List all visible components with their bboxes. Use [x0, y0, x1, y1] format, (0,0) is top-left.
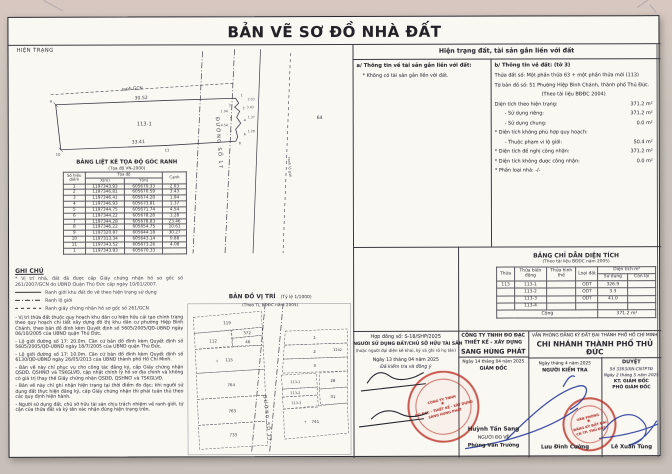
svg-text:372: 372 — [243, 330, 251, 335]
legend-row-setback: Ranh lộ giới — [15, 298, 183, 304]
approval-label: DUYỆT — [601, 359, 661, 365]
land-info-line: Tờ bản đồ số: 51 Phường Hiệp Bình Chánh,… — [495, 82, 655, 89]
company-seal-text: CÔNG TY TNHH — [427, 394, 456, 406]
svg-text:1.37: 1.37 — [248, 115, 255, 119]
checker-date: Ngày tháng 4 năm 2025 — [528, 361, 601, 366]
scan-artifact — [649, 4, 656, 12]
area-total-value: 371.2 m² — [598, 310, 656, 318]
svg-text:2.03: 2.03 — [248, 97, 255, 101]
footer-rule — [353, 330, 661, 332]
approval-date: Ngày 2 tháng 5 năm 2025 — [601, 372, 661, 377]
svg-text:4: 4 — [244, 118, 246, 122]
title-rule — [8, 43, 660, 46]
deputy-role1: KT. GIÁM ĐỐC — [601, 379, 661, 384]
note-paragraph: - Lộ giới đường số 17: 10.0m. Căn cứ bản… — [15, 352, 183, 363]
land-user-role-note: (hoặc người đại diện kê khai, ký và ghi … — [353, 348, 458, 353]
land-info-line: - Thuộc phạm vi lộ giới:50.4 m² — [495, 139, 655, 146]
scan-artifact — [43, 0, 63, 11]
svg-text:1142: 1142 — [333, 348, 342, 352]
svg-text:741: 741 — [311, 419, 319, 424]
col-point: Số hiệu điểm — [63, 172, 85, 184]
svg-text:30.52: 30.52 — [134, 95, 147, 101]
approval-number: Số 3363/XN-CNTPTĐ — [601, 366, 661, 371]
location-map: 119 112 372 46 115 764 763 733 1 2 3 114… — [187, 303, 351, 455]
svg-text:119: 119 — [223, 320, 231, 325]
ab-divider — [491, 59, 492, 247]
svg-text:8: 8 — [239, 141, 241, 145]
dashed-line-swatch — [15, 308, 41, 309]
deputy-name: Lê Xuân Tùng — [602, 444, 662, 450]
land-info-line: - Sử dụng chung:0.0 m² — [495, 120, 655, 127]
table-row: 11197343.93605670.33 — [64, 248, 187, 254]
land-user-checked-note: Đã kiểm tra và đồng ý — [353, 365, 458, 370]
office-seal-text: VĂN PHÒNG — [576, 412, 600, 422]
col-bien-dong: Thửa biến động — [515, 266, 547, 281]
note-paragraph: - Người sử dụng đất, chủ sở hữu tài sản … — [15, 402, 183, 413]
svg-text:46: 46 — [245, 339, 251, 344]
svg-text:4.54: 4.54 — [221, 123, 228, 127]
svg-text:1: 1 — [241, 93, 243, 97]
svg-text:3: 3 — [313, 363, 316, 368]
legend-row-certificate: Ranh giấy chứng nhận hồ sơ gốc số 261/GC… — [15, 307, 183, 313]
land-user-role: NGƯỜI SỬ DỤNG ĐẤT/CHỦ SỞ HỮU TÀI SẢN — [353, 342, 458, 347]
solid-line-swatch — [15, 292, 41, 293]
page-title: BẢN VẼ SƠ ĐỒ NHÀ ĐẤT — [8, 22, 660, 42]
main-divider — [352, 44, 354, 458]
company-header-rule — [458, 356, 528, 357]
svg-text:1: 1 — [313, 335, 316, 340]
note-paragraph: - Bản vẽ này chỉ ghi nhận hiện trạng tại… — [15, 384, 183, 401]
col-hinh-the: Thửa hình thể — [546, 266, 576, 281]
land-status-band: Hiện trạng đất, tài sản gắn liền với đất — [353, 47, 661, 55]
svg-text:28: 28 — [330, 378, 336, 383]
director-role: GIÁM ĐỐC — [458, 366, 528, 371]
surveyor-role: NGƯỜI ĐO VẼ — [459, 435, 529, 440]
dashdot-line-swatch — [15, 300, 41, 301]
land-user-date: Ngày 13 tháng 04 năm 2025 — [353, 358, 458, 363]
company-seal-text: SANG HÙNG PHÁT — [428, 407, 462, 420]
svg-text:763: 763 — [228, 408, 236, 413]
director-name: Huỳnh Tấn Sang — [458, 426, 528, 432]
notes-title: GHI CHÚ — [15, 267, 183, 274]
company-seal-text: ĐO ĐẠC - THIẾT KẾ - XÂY DỰNG — [415, 400, 474, 419]
office-line2: CHI NHÁNH THÀNH PHỐ THỦ ĐỨC — [528, 340, 661, 356]
note-paragraph: - Lộ giới đường số 17: 20.0m. Căn cứ bản… — [15, 339, 183, 350]
svg-text:1.28: 1.28 — [248, 129, 255, 133]
svg-text:112: 112 — [209, 338, 217, 343]
band-rule — [353, 58, 661, 60]
svg-text:113-1: 113-1 — [137, 121, 152, 127]
svg-text:764: 764 — [227, 382, 235, 387]
svg-text:ranh lộ giới: ranh lộ giới — [287, 157, 292, 177]
svg-text:3: 3 — [229, 103, 231, 107]
svg-text:10: 10 — [56, 153, 61, 157]
svg-text:1.94: 1.94 — [221, 109, 228, 113]
company-line2: THIẾT KẾ - XÂY DỰNG — [458, 340, 528, 345]
svg-text:+: + — [303, 419, 306, 424]
land-info-line: Thửa đất số: Một phần thửa 63 + một phần… — [495, 72, 655, 79]
svg-text:31: 31 — [330, 394, 336, 399]
land-info-line: * Diện tích không phù hợp quy hoạch: — [495, 129, 655, 136]
checker-role: NGƯỜI KIỂM TRA — [528, 368, 601, 373]
scan-artifact — [637, 0, 649, 8]
svg-text:5: 5 — [230, 116, 232, 120]
area-table-box: BẢNG CHỈ DẪN DIỆN TÍCH (Theo tài liệu BĐ… — [496, 252, 656, 318]
svg-text:9: 9 — [50, 100, 53, 104]
land-info-line: - Sử dụng riêng:371.2 m² — [495, 110, 655, 117]
notes-paragraphs: - Vị trí thửa đất thuộc quy hoạch khu dâ… — [15, 315, 183, 413]
svg-text:3.43: 3.43 — [247, 105, 254, 109]
star-icon: ★ — [586, 419, 592, 425]
land-info-line: * Phân loại nhà: -/- — [495, 167, 655, 174]
svg-text:113-1: 113-1 — [290, 380, 300, 384]
map-parcel-labels: 119 112 372 46 115 764 763 733 1 2 3 114… — [209, 320, 342, 437]
svg-text:6: 6 — [244, 132, 246, 136]
land-info-line: * Diện tích đề nghị công nhận:371.2 m² — [495, 148, 655, 155]
notes-intro: * Vị trí nhà, đất đã được cấp Giấy chứng… — [15, 276, 183, 287]
col-thua: Thửa — [497, 267, 515, 282]
svg-text:33.41: 33.41 — [132, 139, 145, 145]
svg-text:2: 2 — [313, 349, 316, 354]
checker-name: Lưu Đình Cường — [529, 444, 602, 450]
land-info-title: b/ Thông tin về đất: (tờ 3) — [495, 62, 571, 68]
col-edge: Cạnh — [163, 172, 187, 184]
map-scale: (Tỷ lệ 1/1000) — [281, 295, 312, 300]
office-seal-text: CN TP. THỦ ĐỨC — [576, 425, 607, 437]
document-sheet: BẢN VẼ SƠ ĐỒ NHÀ ĐẤT HIỆN TRẠNG ranh GCN… — [7, 15, 660, 458]
notes-section: GHI CHÚ * Vị trí nhà, đất đã được cấp Gi… — [15, 267, 183, 415]
note-paragraph: - Vị trí thửa đất thuộc quy hoạch khu dâ… — [15, 315, 183, 337]
col-con-lai: Còn lại — [628, 273, 656, 280]
col-loai-dat: Loại đất — [576, 266, 598, 281]
land-info-line: Diện tích theo hiện trạng:371.2 m² — [495, 101, 655, 108]
svg-text:2: 2 — [243, 106, 245, 110]
area-section-divider — [458, 247, 459, 331]
star-icon: ★ — [440, 402, 446, 408]
svg-text:11: 11 — [165, 148, 170, 152]
land-info-lines: Thửa đất số: Một phần thửa 63 + một phần… — [495, 72, 655, 177]
doc-inner-right-border — [656, 43, 658, 457]
svg-text:113-3: 113-3 — [291, 401, 301, 405]
scanned-land-survey-page: { "doc": { "title": "BẢN VẼ SƠ ĐỒ NHÀ ĐẤ… — [0, 0, 672, 474]
map-title: BẢN ĐỒ VỊ TRÍ — [229, 294, 276, 300]
office-line1: VĂN PHÒNG ĐĂNG KÝ ĐẤT ĐAI THÀNH PHỐ HỒ C… — [528, 333, 661, 338]
office-seal-text: ĐĂNG KÝ ĐẤT ĐAI — [573, 420, 607, 433]
svg-text:7: 7 — [230, 130, 232, 134]
asset-info-title: a/ Thông tin về tài sản gắn liền với đất… — [357, 63, 472, 69]
area-section-rule — [353, 246, 661, 248]
company-date: Ngày 14 tháng 04 năm 2025 — [458, 359, 528, 364]
area-table-subtitle: (Theo tài liệu BĐĐC năm 2005) — [496, 259, 656, 264]
legend-row-boundary: Ranh giới khu đất đo vẽ theo hiện trạng … — [15, 290, 183, 296]
svg-text:+: + — [215, 358, 218, 363]
land-info-line: (Theo tài liệu BĐĐC 2004) — [495, 91, 655, 98]
contract-number: Hợp đồng số: S-18/SHP/2025 — [353, 334, 458, 340]
coordinate-table-box: BẢNG LIỆT KÊ TỌA ĐỘ GÓC RANH (Tọa độ VN-… — [63, 159, 191, 254]
svg-text:64: 64 — [317, 115, 323, 121]
svg-text:ranh GCN: ranh GCN — [121, 85, 143, 92]
surveyor-name: Phùng Văn Trường — [459, 442, 529, 448]
land-info-line: * Diện tích không được công nhận:0.0 m² — [495, 158, 655, 165]
coordinate-table-subtitle: (Tọa độ VN-2000) — [63, 165, 191, 170]
company-line3: SANG HÙNG PHÁT — [458, 347, 528, 355]
svg-text:733: 733 — [230, 432, 238, 437]
company-line1: CÔNG TY TNHH ĐO ĐẠC — [458, 333, 528, 338]
deputy-role2: PHÓ GIÁM ĐỐC — [601, 385, 661, 390]
area-total-label: Cộng — [497, 310, 598, 318]
svg-text:115: 115 — [225, 357, 233, 362]
col-su-dung: Sử dụng — [598, 274, 628, 281]
area-table: Thửa Thửa biến động Thửa hình thể Loại đ… — [496, 266, 656, 319]
asset-info-note: * Không có tài sản gắn liền với đất. — [363, 73, 449, 79]
note-paragraph: - Bản vẽ này chỉ phục vụ cho công tác đă… — [15, 365, 183, 382]
svg-text:113-2: 113-2 — [290, 391, 300, 395]
coordinate-table: Số hiệu điểm Tọa độ Cạnh X(m) Y(m) 11197… — [63, 171, 187, 254]
